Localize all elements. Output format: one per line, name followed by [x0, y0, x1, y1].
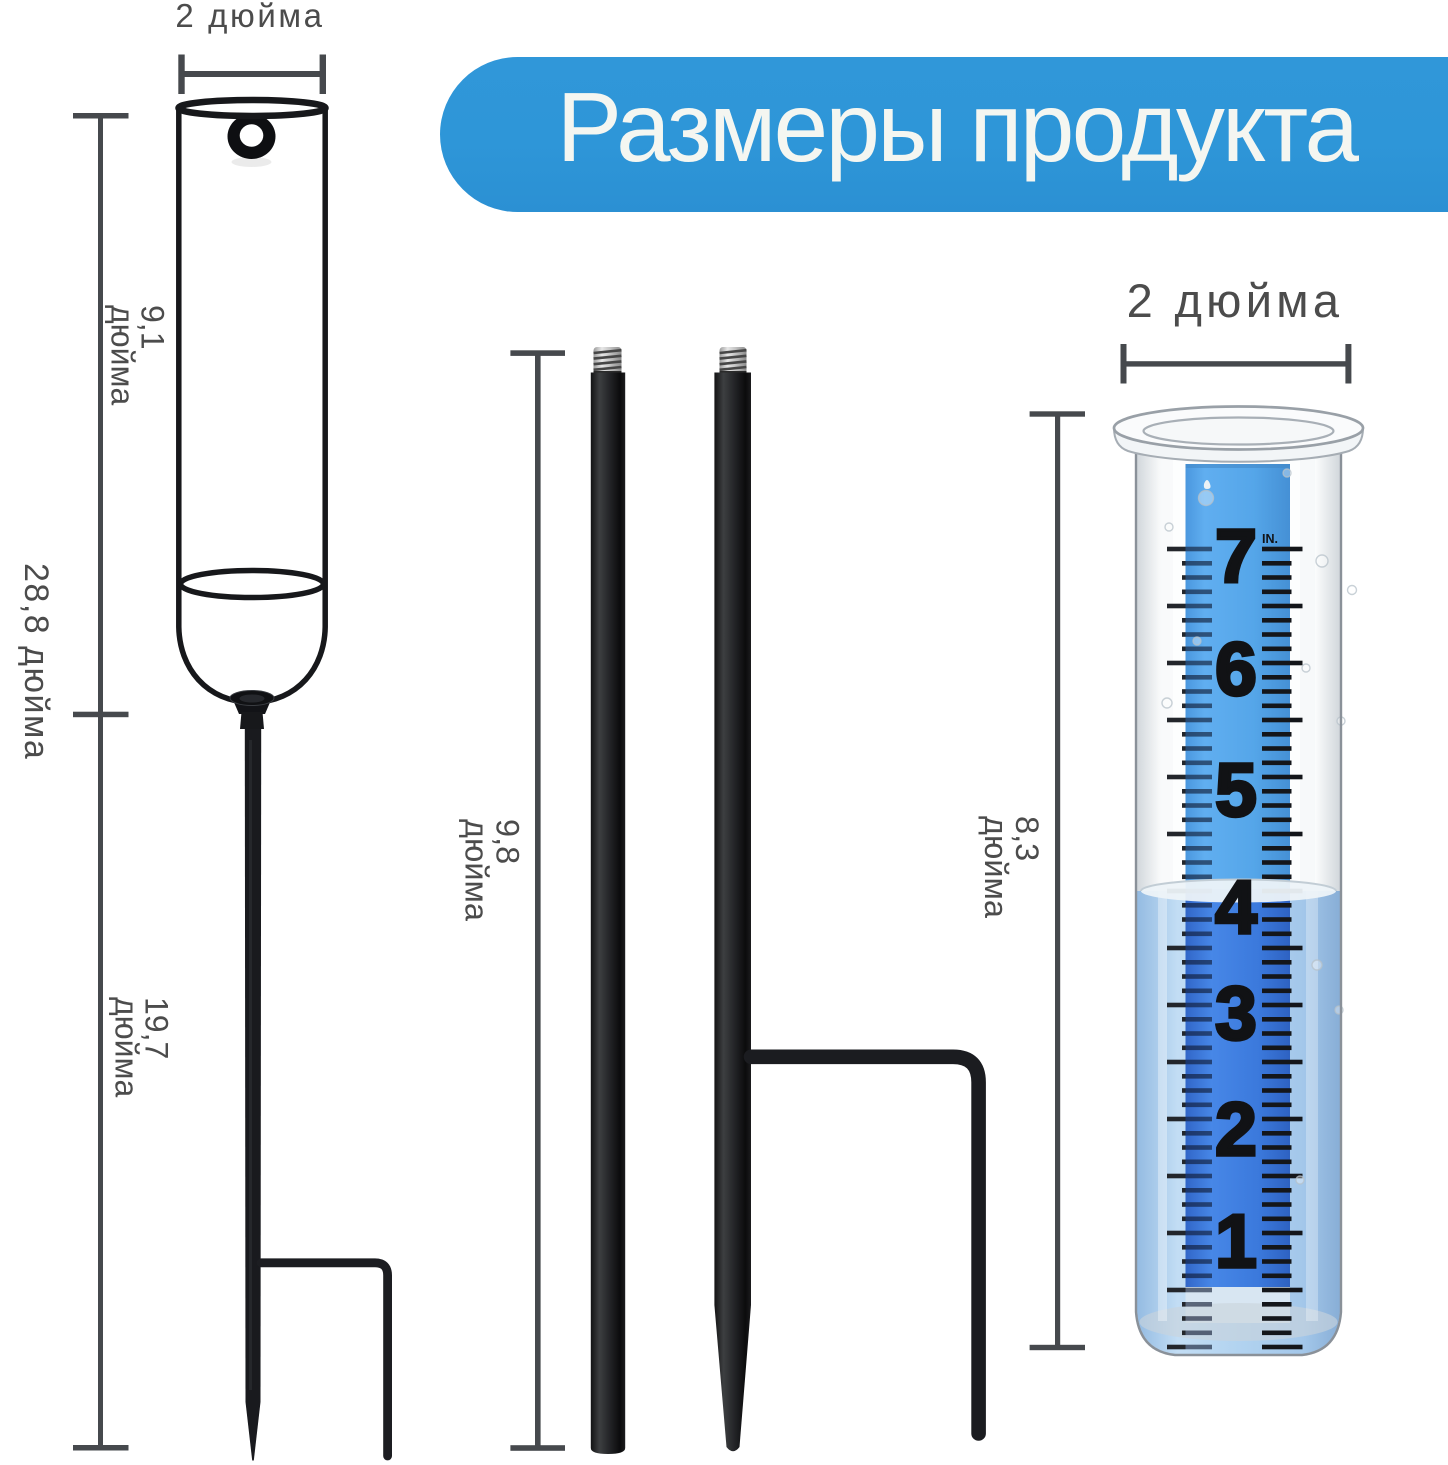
- svg-text:6: 6: [1215, 627, 1257, 711]
- svg-text:9,1дюйма: 9,1дюйма: [105, 305, 171, 406]
- svg-text:1: 1: [1215, 1199, 1257, 1283]
- svg-text:2 дюйма: 2 дюйма: [175, 0, 324, 34]
- svg-text:7: 7: [1215, 514, 1257, 598]
- svg-text:5: 5: [1215, 748, 1257, 832]
- svg-text:2 дюйма: 2 дюйма: [1127, 274, 1344, 327]
- svg-text:28,8 дюйма: 28,8 дюйма: [17, 563, 55, 760]
- svg-text:IN.: IN.: [1262, 532, 1278, 546]
- svg-text:3: 3: [1215, 971, 1257, 1055]
- svg-text:2: 2: [1215, 1087, 1257, 1171]
- svg-text:9,8дюйма: 9,8дюйма: [459, 819, 526, 922]
- svg-text:8,3дюйма: 8,3дюйма: [978, 816, 1045, 919]
- svg-text:4: 4: [1215, 865, 1257, 949]
- svg-text:19,7дюйма: 19,7дюйма: [109, 997, 175, 1098]
